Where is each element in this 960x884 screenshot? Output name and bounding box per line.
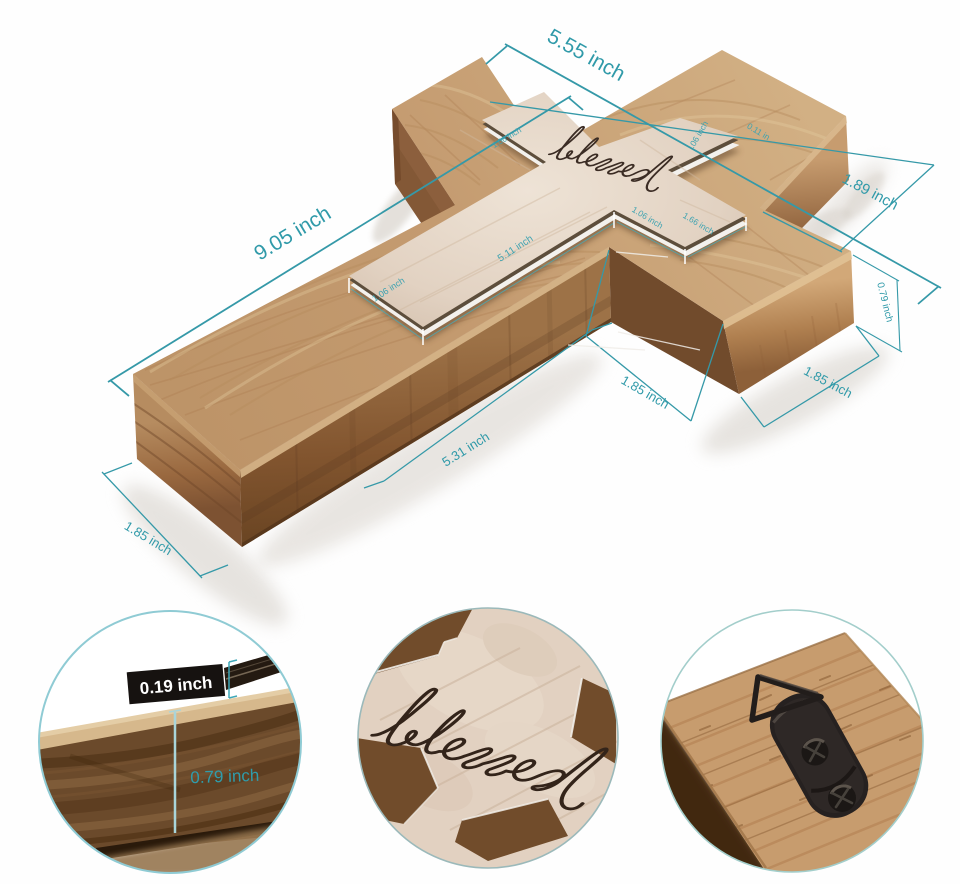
svg-text:0.79 inch: 0.79 inch <box>190 766 260 787</box>
